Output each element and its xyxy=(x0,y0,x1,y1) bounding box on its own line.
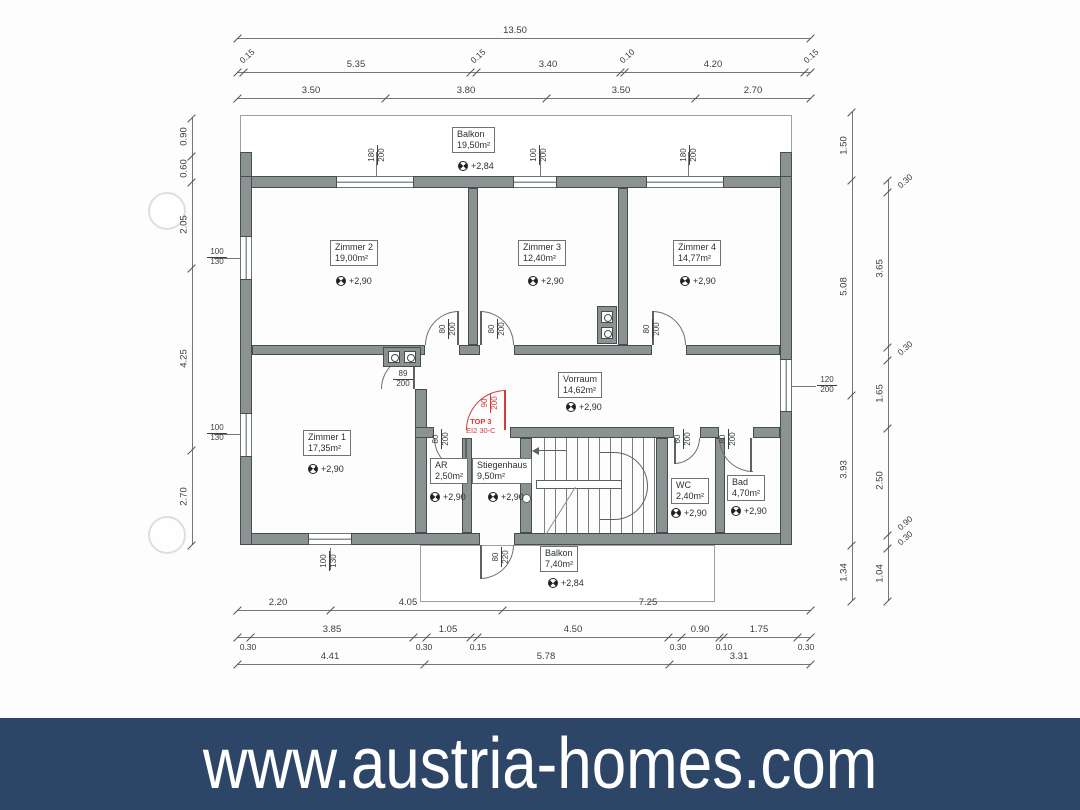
wall xyxy=(556,176,647,188)
elevation-marker-icon xyxy=(729,504,743,518)
size-label: 80200 xyxy=(719,428,737,450)
size-label: 80200 xyxy=(439,318,457,340)
dimension-label: 4.05 xyxy=(386,597,430,608)
dimension-label: 0.30 xyxy=(892,336,918,361)
wall xyxy=(459,345,480,355)
wall xyxy=(240,279,252,414)
dimension-label: 4.50 xyxy=(551,624,595,635)
wall xyxy=(351,533,480,545)
dimension-label: 1.05 xyxy=(426,624,470,635)
dimension-label: 0.30 xyxy=(792,642,820,652)
dimension-label: 0.10 xyxy=(614,44,640,69)
elevation-label: +2,90 xyxy=(731,506,767,516)
dimension-label: 5.35 xyxy=(334,59,378,70)
elevation-label: +2,90 xyxy=(566,402,602,412)
elevation-label: +2,90 xyxy=(528,276,564,286)
leader-line xyxy=(792,386,816,387)
balcony-top-outline xyxy=(240,115,792,178)
size-label: 100200 xyxy=(530,144,548,166)
dimension-label: 4.41 xyxy=(308,651,352,662)
flue-port xyxy=(601,311,613,323)
dimension-label: 1.04 xyxy=(875,554,886,594)
dimension-label: 5.08 xyxy=(839,267,850,307)
size-label: 180200 xyxy=(368,144,386,166)
room-label: Stiegenhaus9,50m² xyxy=(472,458,532,484)
flue-port xyxy=(404,351,416,363)
punch-hole xyxy=(148,516,186,554)
dimension-line xyxy=(888,180,889,601)
size-label: 90200 xyxy=(481,392,499,414)
elevation-marker-icon xyxy=(678,274,692,288)
dimension-label: 0.90 xyxy=(678,624,722,635)
elevation-label: +2,84 xyxy=(458,161,494,171)
room-label: Zimmer 414,77m² xyxy=(673,240,721,266)
dimension-label: 0.30 xyxy=(664,642,692,652)
window xyxy=(337,176,413,188)
wall xyxy=(780,152,792,178)
dimension-label: 0.15 xyxy=(464,642,492,652)
balcony-door-leaf xyxy=(480,545,482,579)
dimension-label: 4.20 xyxy=(691,59,735,70)
size-label: 80200 xyxy=(488,318,506,340)
elevation-marker-icon xyxy=(306,462,320,476)
dimension-label: 3.80 xyxy=(444,85,488,96)
elevation-label: +2,90 xyxy=(488,492,524,502)
wall xyxy=(514,533,792,545)
dimension-label: 0.15 xyxy=(234,44,260,69)
room-label: Zimmer 219,00m² xyxy=(330,240,378,266)
website-banner: www.austria-homes.com xyxy=(0,718,1080,810)
size-label: 89200 xyxy=(392,370,414,388)
size-label: 100130 xyxy=(320,550,338,572)
window xyxy=(309,533,351,545)
unit-label: TOP 3EI2 30-C xyxy=(466,417,496,435)
elevation-label: +2,90 xyxy=(430,492,466,502)
dimension-label: 2.70 xyxy=(731,85,775,96)
dimension-label: 3.50 xyxy=(599,85,643,96)
dimension-line xyxy=(237,610,810,611)
wall xyxy=(468,188,478,345)
wall xyxy=(510,427,674,438)
dimension-label: 1.50 xyxy=(839,126,850,166)
dimension-label: 7.25 xyxy=(626,597,670,608)
dimension-label: 3.40 xyxy=(526,59,570,70)
dimension-line xyxy=(852,112,853,601)
elevation-label: +2,90 xyxy=(680,276,716,286)
door-leaf xyxy=(480,311,482,345)
wall xyxy=(415,389,427,533)
elevation-marker-icon xyxy=(669,506,683,520)
door-leaf xyxy=(457,311,459,345)
dimension-label: 2.05 xyxy=(179,205,190,245)
wall xyxy=(686,345,780,355)
wall xyxy=(618,188,628,345)
dimension-label: 3.85 xyxy=(310,624,354,635)
dimension-line xyxy=(237,72,810,73)
dimension-label: 1.34 xyxy=(839,553,850,593)
website-url: www.austria-homes.com xyxy=(203,723,877,805)
chimney-flue xyxy=(597,306,617,344)
dimension-label: 0.60 xyxy=(179,149,190,189)
elevation-marker-icon xyxy=(486,490,500,504)
dimension-label: 5.78 xyxy=(524,651,568,662)
stair-arrow-shaft xyxy=(538,450,566,451)
room-label: Zimmer 117,35m² xyxy=(303,430,351,456)
dimension-line xyxy=(237,98,810,99)
elevation-marker-icon xyxy=(526,274,540,288)
room-label: WC2,40m² xyxy=(671,478,709,504)
dimension-label: 0.15 xyxy=(465,44,491,69)
room-label: AR2,50m² xyxy=(430,458,468,484)
dimension-label: 2.20 xyxy=(256,597,300,608)
wall xyxy=(413,176,514,188)
room-label: Zimmer 312,40m² xyxy=(518,240,566,266)
dimension-label: 2.50 xyxy=(875,461,886,501)
dimension-label: 0.30 xyxy=(892,169,918,194)
size-label: 180200 xyxy=(680,144,698,166)
room-label: Balkon19,50m² xyxy=(452,127,495,153)
door-leaf xyxy=(750,438,752,472)
dimension-label: 3.50 xyxy=(289,85,333,96)
elevation-marker-icon xyxy=(456,159,470,173)
elevation-label: +2,84 xyxy=(548,578,584,588)
stair-rail xyxy=(536,480,622,489)
dimension-label: 0.30 xyxy=(234,642,262,652)
wall xyxy=(656,438,668,533)
dimension-label: 1.65 xyxy=(875,374,886,414)
size-label: 120200 xyxy=(816,376,838,394)
dimension-line xyxy=(237,38,810,39)
room-label: Vorraum14,62m² xyxy=(558,372,602,398)
elevation-label: +2,90 xyxy=(671,508,707,518)
flue-port xyxy=(601,327,613,339)
floor-plan: Balkon19,50m²+2,84Zimmer 219,00m²+2,90Zi… xyxy=(0,0,1080,718)
wall xyxy=(240,152,252,178)
elevation-marker-icon xyxy=(428,490,442,504)
elevation-marker-icon xyxy=(564,400,578,414)
entry-door-leaf xyxy=(504,390,506,430)
dimension-label: 0.30 xyxy=(410,642,438,652)
size-label: 80200 xyxy=(643,318,661,340)
wall xyxy=(780,411,792,545)
room-label: Bad4,70m² xyxy=(727,475,765,501)
window xyxy=(240,414,252,456)
dimension-label: 3.31 xyxy=(717,651,761,662)
wall xyxy=(780,176,792,360)
flue-port xyxy=(388,351,400,363)
dimension-label: 4.25 xyxy=(179,339,190,379)
window xyxy=(780,360,792,411)
wall xyxy=(240,456,252,545)
dimension-label: 0.15 xyxy=(798,44,824,69)
wall xyxy=(700,427,719,438)
elevation-marker-icon xyxy=(546,576,560,590)
dimension-line xyxy=(237,664,810,665)
size-label: 80200 xyxy=(432,428,450,450)
elevation-marker-icon xyxy=(334,274,348,288)
wall xyxy=(240,176,252,237)
dimension-label: 3.93 xyxy=(839,450,850,490)
wall xyxy=(240,176,337,188)
size-label: 80220 xyxy=(492,546,510,568)
dimension-label: 1.75 xyxy=(737,624,781,635)
dimension-label: 3.65 xyxy=(875,249,886,289)
size-label: 100130 xyxy=(206,424,228,442)
wall xyxy=(753,427,780,438)
size-label: 60200 xyxy=(674,428,692,450)
wall xyxy=(520,438,532,533)
dimension-label: 2.70 xyxy=(179,477,190,517)
room-label: Balkon7,40m² xyxy=(540,546,578,572)
size-label: 100130 xyxy=(206,248,228,266)
window xyxy=(240,237,252,279)
elevation-label: +2,90 xyxy=(308,464,344,474)
window xyxy=(514,176,556,188)
chimney-flue xyxy=(383,347,421,367)
dimension-label: 13.50 xyxy=(493,25,537,36)
window xyxy=(647,176,723,188)
elevation-label: +2,90 xyxy=(336,276,372,286)
wall xyxy=(514,345,652,355)
